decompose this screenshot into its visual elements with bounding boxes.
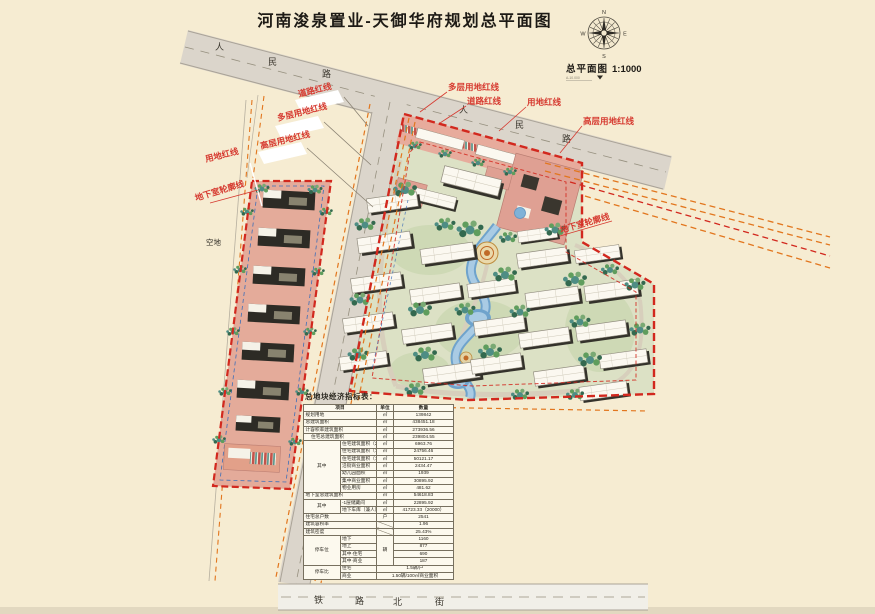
kindergarten-block [223, 444, 280, 473]
compass-w: W [580, 32, 586, 38]
road-char: 人 [215, 42, 224, 52]
drawing-name: 总平面图 [566, 63, 608, 75]
table-cell-unit: ㎡ [377, 456, 394, 463]
table-row: 住宅总户数 户 2541 [304, 514, 454, 521]
table-cell-item: 住宅建筑面积（26层） [340, 441, 377, 448]
page-title: 河南浚泉置业-天御华府规划总平面图 [0, 7, 810, 31]
table-cell-qty: 1160 [394, 536, 454, 543]
table-cell-qty: 2541 [394, 514, 454, 521]
table-cell-group: 停车比 [304, 565, 341, 580]
table-cell-unit: ㎡ [377, 463, 394, 470]
road-char: 街 [435, 596, 444, 607]
table-cell-qty: 1939 [394, 470, 454, 477]
table-cell-item: 地上 [340, 543, 377, 550]
road-char: 民 [268, 57, 277, 67]
table-cell-item: 建筑密度 [304, 529, 377, 536]
indicator-table: 项目 单位 数量 规划用地 ㎡ 139842 总建筑面积 ㎡ 438451.18… [303, 404, 454, 580]
label-land-red-line-top: 用地红线 [526, 97, 562, 107]
table-row: 地下室总建筑面积 ㎡ 54618.83 [304, 492, 454, 499]
table-cell-unit: 户 [377, 514, 394, 521]
table-cell-item: 物业用房 [340, 485, 377, 492]
table-cell-item: 住宅总建筑面积 [304, 434, 377, 441]
header-item: 项目 [304, 405, 377, 412]
drawing-scale: 1:1000 [612, 64, 642, 75]
table-cell-qty: 54618.83 [394, 492, 454, 499]
table-row: 停车比 住宅 1.5辆/户 [304, 565, 454, 572]
road-char: 北 [393, 597, 402, 607]
table-cell-qty: 187 [394, 558, 454, 565]
table-cell-qty: 24756.46 [394, 448, 454, 455]
site-plan-sheet: 人 民 路 人 民 路 铁 路 北 街 [0, 0, 875, 614]
table-header-row: 项目 单位 数量 [304, 405, 454, 412]
compass-e: E [623, 32, 627, 38]
table-cell-qty: 1.5辆/户 [377, 565, 454, 572]
header-unit: 单位 [377, 405, 394, 412]
road-char: 路 [322, 68, 331, 79]
table-cell-unit: ㎡ [377, 477, 394, 484]
table-row: 计容积率建筑面积 ㎡ 273936.56 [304, 426, 454, 433]
table-cell-qty: 438451.18 [394, 419, 454, 426]
table-cell-item: 地下室总建筑面积 [304, 492, 377, 499]
table-cell-item: 住宅总户数 [304, 514, 377, 521]
table-cell-item: 住宅建筑面积（18层） [340, 448, 377, 455]
road-char: 铁 [314, 594, 323, 605]
label-multistorey-red-line-top: 多层用地红线 [448, 82, 500, 92]
table-cell-item: 地下车库（兼人防） [340, 507, 377, 514]
table-cell-qty: 877 [394, 543, 454, 550]
table-cell-qty: 2434.47 [394, 463, 454, 470]
label-vacant-land: 空地 [206, 237, 221, 247]
table-cell-qty: 139842 [394, 412, 454, 419]
table-cell-unit: ㎡ [377, 412, 394, 419]
table-row: 总建筑面积 ㎡ 438451.18 [304, 419, 454, 426]
table-cell-qty: 1.50辆/100㎡商业面积 [377, 572, 454, 579]
table-cell-unit: 辆 [377, 536, 394, 565]
table-title: 总地块经济指标表： [305, 391, 459, 402]
table-cell-group: 停车位 [304, 536, 341, 565]
table-cell-qty: 273936.56 [394, 426, 454, 433]
table-cell-group: 其中 [304, 441, 341, 492]
table-cell-item: 商业 [340, 572, 377, 579]
table-cell-unit [377, 521, 394, 528]
label-road-red-line-top: 道路红线 [467, 96, 502, 106]
header-qty: 数量 [394, 405, 454, 412]
drawing-note: A-10.000 [566, 76, 580, 80]
table-cell-item: 沿街商业面积 [340, 463, 377, 470]
table-cell-item: 幼儿园面积 [340, 470, 377, 477]
table-cell-unit [377, 529, 394, 536]
table-cell-qty: 481.62 [394, 485, 454, 492]
table-cell-item: 地下 [340, 536, 377, 543]
table-row: 建筑容积率 1.96 [304, 521, 454, 528]
table-cell-item: -1层储藏间 [340, 499, 377, 506]
table-cell-qty: 6963.76 [394, 441, 454, 448]
economic-indicator-table: 总地块经济指标表： 项目 单位 数量 规划用地 ㎡ 139842 总建筑面积 ㎡… [303, 391, 459, 580]
road-char: 路 [562, 133, 571, 144]
table-row: 规划用地 ㎡ 139842 [304, 412, 454, 419]
compass-s: S [602, 54, 606, 60]
table-cell-unit: ㎡ [377, 434, 394, 441]
table-cell-item: 规划用地 [304, 412, 377, 419]
table-cell-unit: ㎡ [377, 441, 394, 448]
table-cell-item: 其中·商业 [340, 558, 377, 565]
table-cell-qty: 1.96 [394, 521, 454, 528]
table-cell-item: 总建筑面积 [304, 419, 377, 426]
table-cell-unit: ㎡ [377, 426, 394, 433]
table-cell-qty: 690 [394, 550, 454, 557]
table-row: 其中 住宅建筑面积（26层） ㎡ 6963.76 [304, 441, 454, 448]
table-cell-qty: 30895.92 [394, 477, 454, 484]
table-row: 停车位 地下 辆 1160 [304, 536, 454, 543]
table-row: 其中 -1层储藏间 ㎡ 22895.92 [304, 499, 454, 506]
road-char: 民 [515, 120, 524, 130]
table-cell-unit: ㎡ [377, 485, 394, 492]
table-cell-qty: 25.43% [394, 529, 454, 536]
table-cell-qty: 41723.33（20000） [394, 507, 454, 514]
label-highrise-red-line-right: 高层用地红线 [583, 116, 635, 126]
table-cell-unit: ㎡ [377, 492, 394, 499]
table-cell-qty: 22895.92 [394, 499, 454, 506]
table-cell-group: 其中 [304, 499, 341, 514]
table-row: 建筑密度 25.43% [304, 529, 454, 536]
road-char: 路 [355, 595, 364, 606]
table-cell-item: 建筑容积率 [304, 521, 377, 528]
table-cell-item: 集中商业面积 [340, 477, 377, 484]
table-cell-unit: ㎡ [377, 499, 394, 506]
table-cell-item: 其中·住宅 [340, 550, 377, 557]
table-cell-qty: 50121.17 [394, 456, 454, 463]
table-cell-qty: 239804.55 [394, 434, 454, 441]
table-row: 住宅总建筑面积 ㎡ 239804.55 [304, 434, 454, 441]
table-cell-item: 住宅建筑面积（11层） [340, 456, 377, 463]
tielu-north-street [278, 584, 648, 610]
table-cell-item: 住宅 [340, 565, 377, 572]
table-cell-unit: ㎡ [377, 507, 394, 514]
table-cell-unit: ㎡ [377, 448, 394, 455]
table-cell-unit: ㎡ [377, 419, 394, 426]
table-cell-item: 计容积率建筑面积 [304, 426, 377, 433]
table-cell-unit: ㎡ [377, 470, 394, 477]
